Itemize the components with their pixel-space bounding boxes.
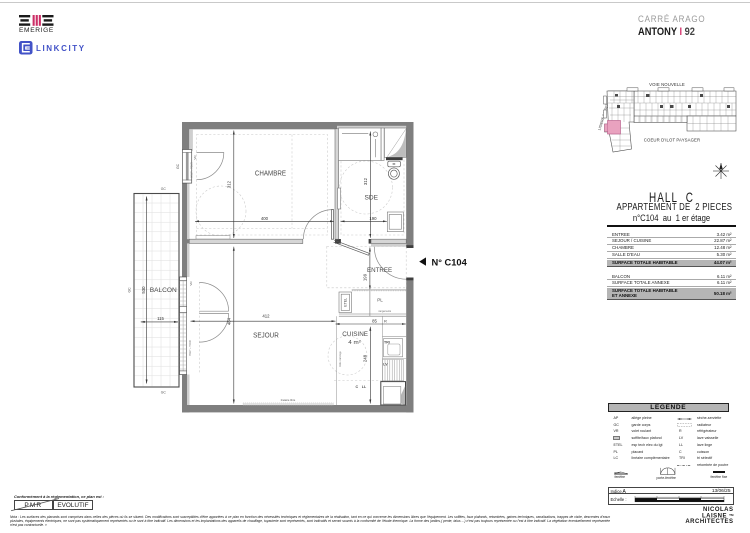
svg-text:linéaire libre: linéaire libre: [281, 398, 296, 402]
svg-text:TRI: TRI: [384, 340, 390, 344]
svg-text:GC: GC: [161, 187, 167, 191]
svg-text:530: 530: [141, 286, 146, 294]
svg-text:N° C104: N° C104: [432, 257, 468, 267]
svg-text:115: 115: [157, 316, 164, 321]
svg-text:BALCON: BALCON: [150, 287, 177, 294]
svg-text:ENTREE: ENTREE: [367, 267, 393, 274]
svg-text:rangements: rangements: [379, 310, 392, 313]
svg-text:C: C: [355, 385, 358, 389]
svg-text:VOIE NOUVELLE: VOIE NOUVELLE: [649, 82, 685, 87]
svg-text:VR: VR: [189, 281, 193, 286]
svg-text:PL: PL: [377, 298, 383, 303]
svg-text:GC: GC: [176, 163, 180, 169]
svg-text:R: R: [384, 318, 387, 323]
svg-text:484: 484: [227, 317, 232, 325]
svg-text:LV: LV: [383, 362, 388, 366]
svg-text:HAUT + TOUR: HAUT + TOUR: [190, 162, 193, 178]
svg-text:248: 248: [363, 354, 368, 362]
svg-text:199: 199: [363, 273, 368, 281]
svg-text:GC: GC: [127, 287, 131, 293]
svg-text:ETEL: ETEL: [343, 298, 347, 307]
svg-text:4 m²: 4 m²: [348, 340, 361, 346]
svg-text:SDE: SDE: [365, 195, 379, 202]
svg-text:85: 85: [372, 318, 377, 323]
svg-text:190: 190: [369, 216, 377, 221]
svg-text:HAUT + TOUR: HAUT + TOUR: [189, 340, 192, 356]
svg-text:limite carrelage: limite carrelage: [339, 350, 342, 366]
svg-text:400: 400: [261, 216, 269, 221]
svg-text:VR: VR: [193, 155, 197, 160]
svg-text:COEUR D'ILOT PAYSAGER: COEUR D'ILOT PAYSAGER: [644, 138, 700, 143]
svg-text:312: 312: [227, 180, 232, 188]
svg-text:LL: LL: [362, 385, 367, 389]
svg-text:CUISINE: CUISINE: [342, 331, 368, 338]
svg-text:GC: GC: [161, 391, 167, 395]
svg-text:412: 412: [262, 314, 270, 319]
svg-text:CHAMBRE: CHAMBRE: [255, 171, 286, 178]
svg-text:312: 312: [363, 177, 368, 185]
svg-text:SEJOUR: SEJOUR: [253, 332, 279, 339]
